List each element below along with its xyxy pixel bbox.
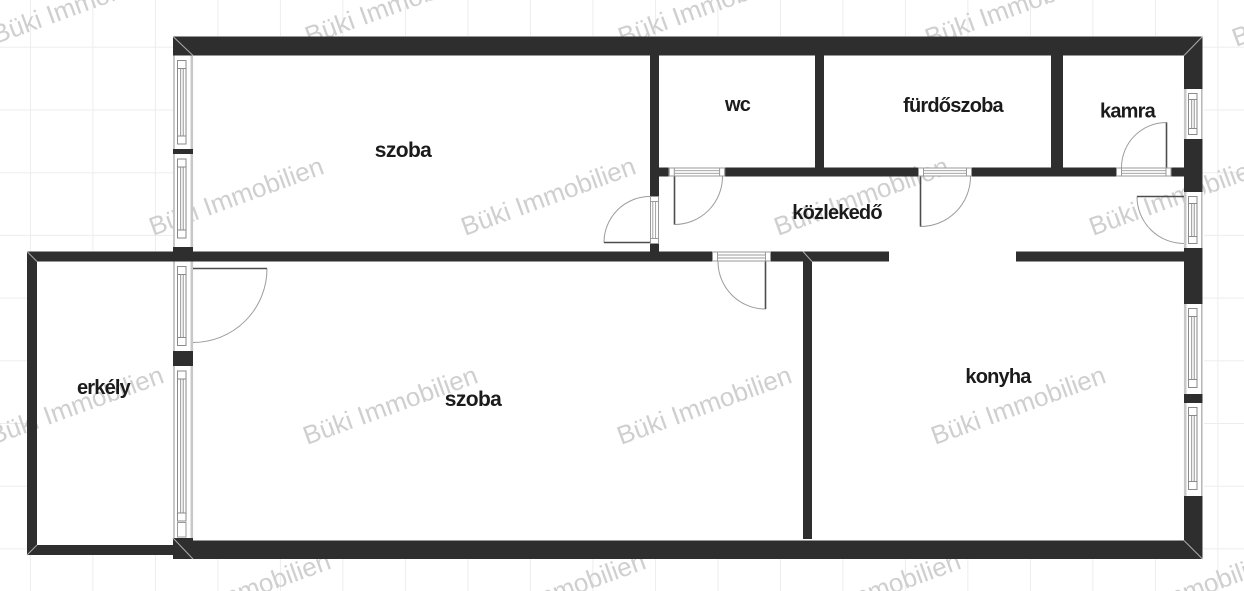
svg-text:wc: wc [724,94,751,116]
svg-text:erkély: erkély [77,377,132,399]
svg-text:konyha: konyha [965,366,1032,388]
svg-text:kamra: kamra [1100,101,1157,123]
svg-text:közlekedő: közlekedő [792,202,882,224]
svg-text:fürdőszoba: fürdőszoba [903,95,1004,117]
svg-text:szoba: szoba [375,139,432,162]
svg-text:szoba: szoba [445,388,502,411]
